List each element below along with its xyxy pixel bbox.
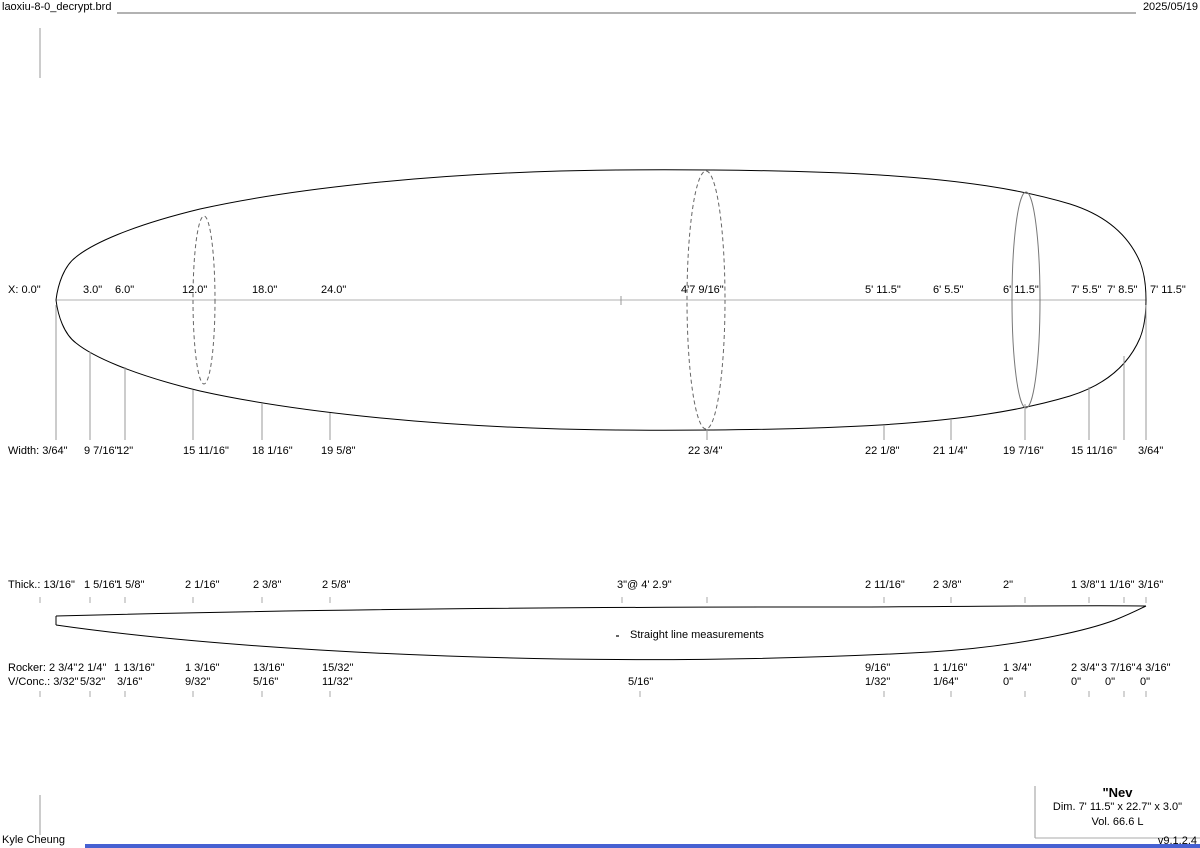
measurement-label: 0" [1071, 676, 1081, 688]
straight-line-marker-dot [616, 635, 619, 637]
author-name: Kyle Cheung [2, 834, 65, 846]
width-drop-lines [56, 305, 1146, 440]
measurement-label: 1 1/16" [933, 662, 968, 674]
board-drawing-canvas [0, 0, 1200, 848]
measurement-label: 15 11/16" [1071, 445, 1117, 457]
straight-line-measurements-note: Straight line measurements [630, 629, 764, 641]
measurement-label: 5' 11.5" [865, 284, 901, 296]
board-info-box: "Nev Dim. 7' 11.5" x 22.7" x 3.0" Vol. 6… [1036, 786, 1199, 830]
measurement-label: 12" [117, 445, 133, 457]
measurement-label: 1 3/8" [1071, 579, 1099, 591]
measurement-label: 6.0" [115, 284, 134, 296]
measurement-label: 19 5/8" [321, 445, 356, 457]
measurement-label: 7' 11.5" [1150, 284, 1186, 296]
measurement-label: 1/32" [865, 676, 890, 688]
measurement-label: Rocker: 2 3/4" [8, 662, 77, 674]
measurement-label: 3/16" [1138, 579, 1163, 591]
measurement-row-rocker: Rocker: 2 3/4"2 1/4"1 13/16"1 3/16"13/16… [0, 662, 1200, 675]
measurement-label: 2 3/8" [253, 579, 281, 591]
measurement-label: 19 7/16" [1003, 445, 1044, 457]
board-dimensions: Dim. 7' 11.5" x 22.7" x 3.0" [1036, 800, 1199, 815]
measurement-label: 9/16" [865, 662, 890, 674]
measurement-label: 3/16" [117, 676, 142, 688]
measurement-label: 22 3/4" [688, 445, 723, 457]
measurement-label: 7' 8.5" [1107, 284, 1137, 296]
measurement-label: 2" [1003, 579, 1013, 591]
measurement-label: 18.0" [252, 284, 277, 296]
measurement-label: 0" [1003, 676, 1013, 688]
measurement-label: 9/32" [185, 676, 210, 688]
measurement-label: 6' 11.5" [1003, 284, 1039, 296]
profile-top-ticks [40, 597, 1146, 603]
measurement-label: 24.0" [321, 284, 346, 296]
measurement-label: 3/64" [1138, 445, 1163, 457]
measurement-label: X: 0.0" [8, 284, 41, 296]
measurement-label: 1 5/16" [84, 579, 119, 591]
bottom-accent-bar [85, 844, 1200, 848]
measurement-label: 7' 5.5" [1071, 284, 1101, 296]
measurement-label: 13/16" [253, 662, 284, 674]
measurement-label: 3.0" [83, 284, 102, 296]
measurement-label: 2 3/8" [933, 579, 961, 591]
measurement-label: 1 1/16" [1100, 579, 1135, 591]
measurement-label: 0" [1140, 676, 1150, 688]
measurement-label: 18 1/16" [252, 445, 293, 457]
measurement-label: 5/16" [628, 676, 653, 688]
board-volume: Vol. 66.6 L [1036, 815, 1199, 830]
measurement-label: 1 5/8" [116, 579, 144, 591]
measurement-label: 1 3/16" [185, 662, 220, 674]
measurement-label: 4'7 9/16" [681, 284, 724, 296]
print-date: 2025/05/19 [1143, 1, 1198, 13]
measurement-label: 1 3/4" [1003, 662, 1031, 674]
board-name: "Nev [1036, 786, 1199, 800]
measurement-label: 21 1/4" [933, 445, 968, 457]
measurement-label: V/Conc.: 3/32" [8, 676, 79, 688]
measurement-label: 12.0" [182, 284, 207, 296]
measurement-label: 3"@ 4' 2.9" [617, 579, 672, 591]
measurement-row-vconcave: V/Conc.: 3/32"5/32"3/16"9/32"5/16"11/32"… [0, 676, 1200, 689]
measurement-label: 15/32" [322, 662, 353, 674]
measurement-label: Width: 3/64" [8, 445, 68, 457]
measurement-label: 0" [1105, 676, 1115, 688]
measurement-label: 4 3/16" [1136, 662, 1171, 674]
file-name: laoxiu-8-0_decrypt.brd [2, 1, 111, 13]
measurement-row-widths: Width: 3/64"9 7/16"12"15 11/16"18 1/16"1… [0, 445, 1200, 458]
measurement-label: 1/64" [933, 676, 958, 688]
measurement-row-thickness: Thick.: 13/16"1 5/16"1 5/8"2 1/16"2 3/8"… [0, 579, 1200, 592]
measurement-label: 2 5/8" [322, 579, 350, 591]
profile-bottom-ticks [40, 691, 1146, 697]
measurement-label: 22 1/8" [865, 445, 900, 457]
measurement-label: 11/32" [322, 676, 353, 688]
measurement-label: 3 7/16" [1101, 662, 1136, 674]
measurement-label: 2 1/4" [78, 662, 106, 674]
measurement-label: 6' 5.5" [933, 284, 963, 296]
measurement-label: 5/16" [253, 676, 278, 688]
measurement-label: 2 11/16" [865, 579, 905, 591]
outline-view [56, 170, 1146, 430]
measurement-label: 5/32" [80, 676, 105, 688]
profile-deck-curve [56, 606, 1146, 616]
measurement-label: 1 13/16" [114, 662, 155, 674]
measurement-label: 2 3/4" [1071, 662, 1099, 674]
profile-bottom-curve [56, 606, 1146, 660]
measurement-label: 2 1/16" [185, 579, 220, 591]
profile-view [56, 606, 1146, 660]
measurement-label: 15 11/16" [183, 445, 229, 457]
measurement-label: Thick.: 13/16" [8, 579, 75, 591]
measurement-label: 9 7/16" [84, 445, 119, 457]
measurement-row-x-positions: X: 0.0"3.0"6.0"12.0"18.0"24.0"4'7 9/16"5… [0, 284, 1200, 297]
